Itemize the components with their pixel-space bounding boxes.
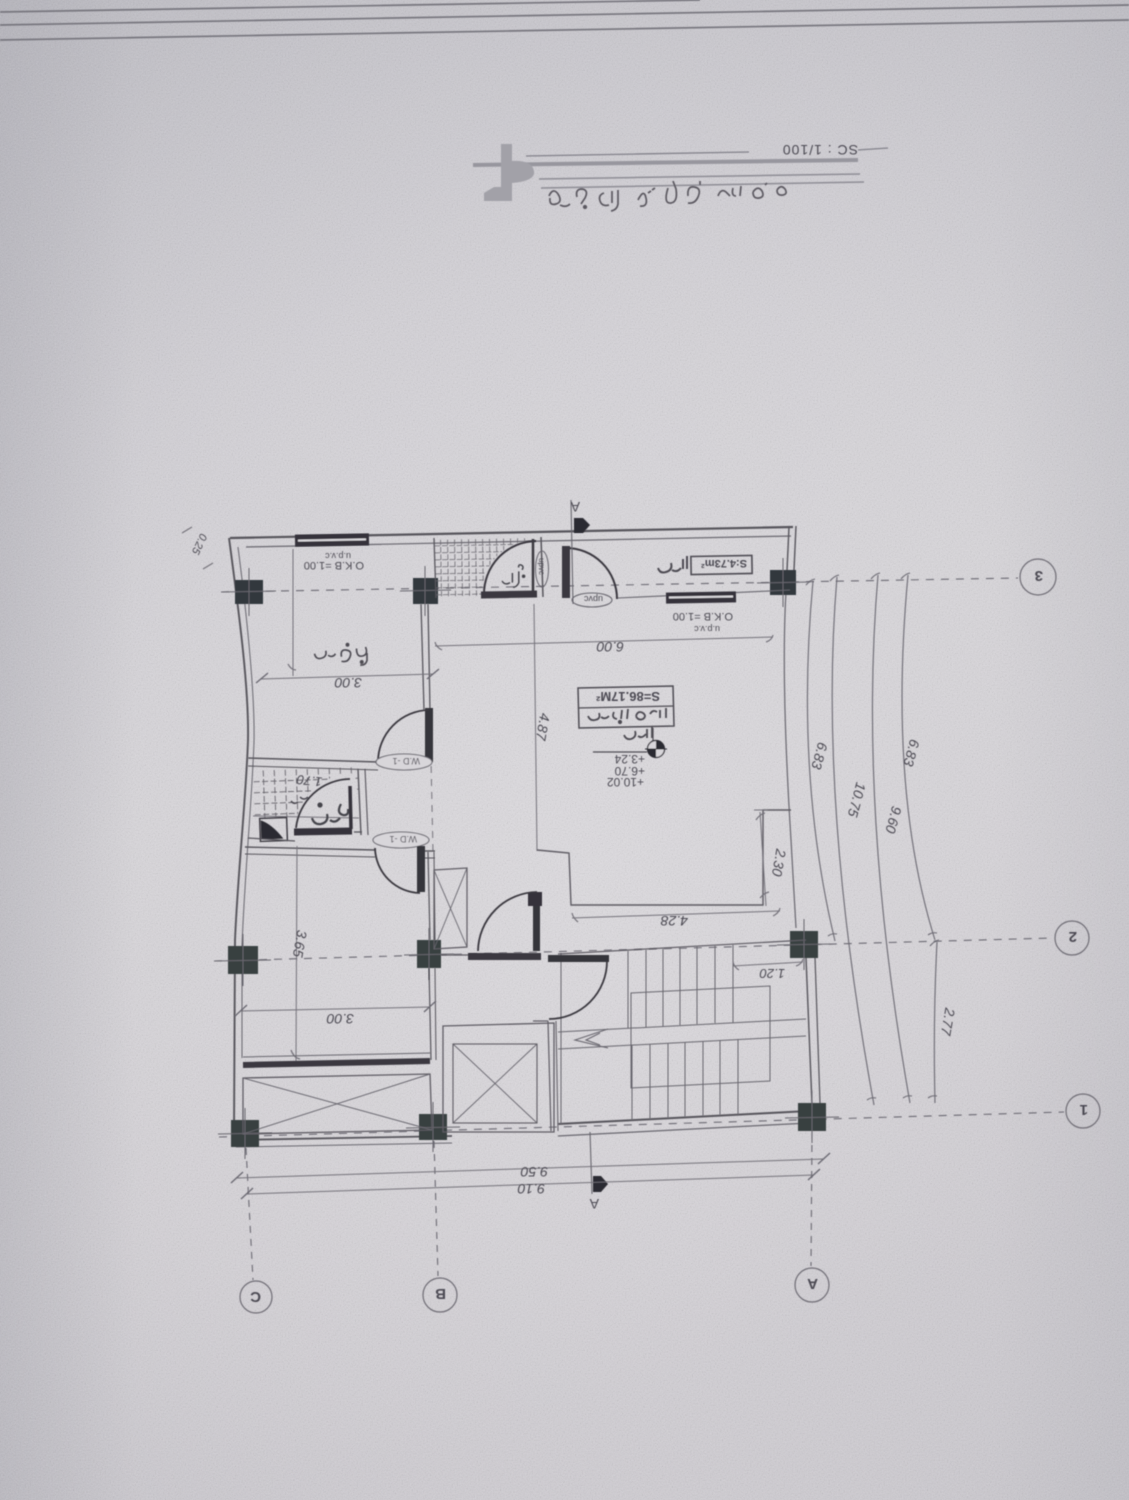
svg-text:3.00: 3.00 (335, 675, 362, 691)
svg-text:upvc: upvc (537, 558, 546, 575)
svg-text:A: A (807, 1275, 818, 1292)
svg-text:W.D -1: W.D -1 (392, 756, 420, 766)
svg-text:1: 1 (1080, 1101, 1088, 1118)
svg-text:SC : 1/100: SC : 1/100 (782, 142, 858, 158)
svg-text:B: B (435, 1285, 446, 1302)
svg-text:4.28: 4.28 (661, 913, 688, 929)
svg-text:1.20: 1.20 (759, 966, 785, 981)
svg-text:O.K.B =1.00: O.K.B =1.00 (304, 559, 364, 571)
svg-text:3.00: 3.00 (327, 1011, 354, 1027)
svg-text:1.70: 1.70 (295, 772, 322, 790)
svg-text:+10.02: +10.02 (607, 775, 644, 789)
svg-text:C: C (250, 1288, 261, 1305)
svg-text:upvc: upvc (583, 594, 603, 604)
svg-text:S=86.17M²: S=86.17M² (595, 689, 660, 704)
svg-text:9.10: 9.10 (518, 1181, 545, 1197)
svg-text:+3.24: +3.24 (614, 752, 645, 766)
svg-text:2: 2 (1069, 928, 1077, 945)
svg-text:6.00: 6.00 (597, 639, 624, 655)
svg-text:u.p.v.c: u.p.v.c (694, 624, 720, 634)
svg-text:S:4.73m²: S:4.73m² (701, 557, 747, 569)
svg-text:A: A (589, 1196, 599, 1212)
svg-text:A: A (570, 499, 580, 515)
svg-text:O.K.B =1.00: O.K.B =1.00 (673, 610, 733, 622)
svg-text:3: 3 (1035, 567, 1043, 584)
svg-text:W.D -1: W.D -1 (389, 834, 417, 844)
svg-text:9.50: 9.50 (521, 1164, 548, 1180)
